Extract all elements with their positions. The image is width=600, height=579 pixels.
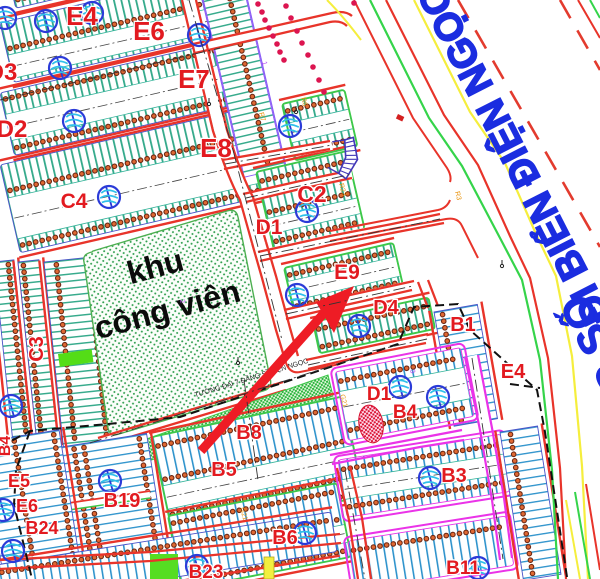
svg-text:C4: C4 bbox=[61, 190, 88, 213]
svg-text:B8: B8 bbox=[236, 422, 262, 444]
svg-text:D2: D2 bbox=[0, 116, 27, 143]
svg-text:B5: B5 bbox=[211, 459, 237, 481]
svg-text:D1: D1 bbox=[256, 216, 283, 239]
svg-text:E6: E6 bbox=[16, 496, 38, 516]
svg-text:B6: B6 bbox=[272, 527, 298, 549]
svg-text:E5: E5 bbox=[8, 471, 30, 491]
svg-text:B1: B1 bbox=[450, 314, 476, 336]
svg-text:D1: D1 bbox=[367, 384, 392, 405]
svg-text:C2: C2 bbox=[297, 181, 326, 207]
svg-text:E4: E4 bbox=[501, 361, 526, 383]
svg-text:E7: E7 bbox=[178, 64, 210, 94]
svg-text:E6: E6 bbox=[133, 16, 165, 46]
svg-text:E9: E9 bbox=[334, 261, 360, 284]
svg-text:B4: B4 bbox=[393, 402, 418, 423]
svg-text:E8: E8 bbox=[200, 133, 232, 163]
svg-text:C3: C3 bbox=[26, 336, 48, 362]
svg-text:B3: B3 bbox=[441, 465, 467, 487]
svg-text:E4: E4 bbox=[66, 1, 98, 31]
svg-text:D3: D3 bbox=[0, 59, 17, 86]
svg-text:B23: B23 bbox=[189, 562, 224, 579]
svg-text:B11: B11 bbox=[446, 558, 480, 579]
svg-text:D4: D4 bbox=[373, 297, 399, 319]
svg-text:B24: B24 bbox=[25, 518, 58, 538]
svg-text:B19: B19 bbox=[104, 490, 141, 512]
svg-text:B4: B4 bbox=[0, 436, 14, 457]
